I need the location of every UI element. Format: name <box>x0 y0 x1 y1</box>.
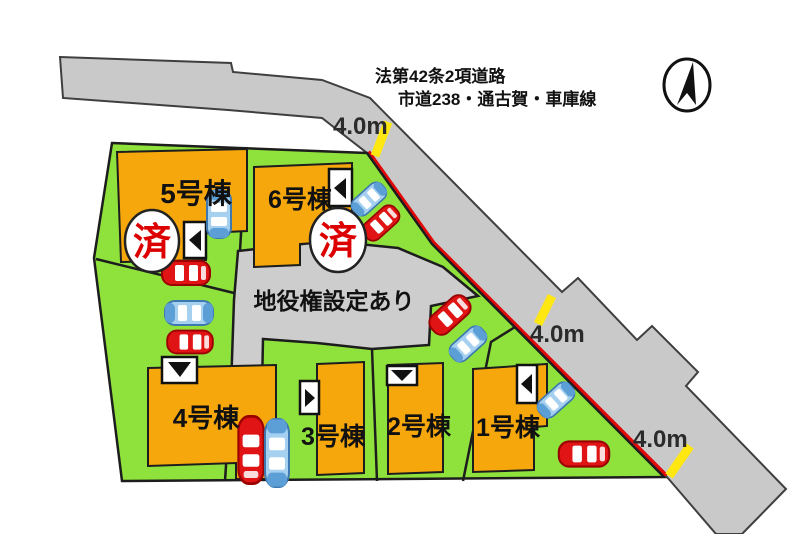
easement-label: 地役権設定あり <box>254 288 415 314</box>
site-plan-canvas: 地役権設定あり <box>0 0 801 534</box>
site-plan-drawing: 地役権設定あり <box>0 0 801 534</box>
sold-badge-lot6-text: 済 <box>319 221 358 263</box>
sold-badge-lot5-text: 済 <box>133 222 172 264</box>
sold-badge-lot6: 済 <box>310 208 366 272</box>
blue-car-icon <box>265 419 289 486</box>
entrance-marker-right-icon <box>300 381 319 414</box>
lot-2-label: 2号棟 <box>387 413 452 441</box>
red-car-icon <box>238 416 263 483</box>
entrance-marker-left-icon <box>329 169 352 206</box>
road-designation-line1: 法第42条2項道路 <box>375 66 506 86</box>
lot-5-label: 5号棟 <box>160 178 233 209</box>
sold-badge-lot5: 済 <box>125 210 179 272</box>
road-width-label-3: 4.0m <box>633 426 688 453</box>
north-compass-icon <box>664 59 710 111</box>
road-width-label-2: 4.0m <box>530 321 585 348</box>
entrance-marker-left-icon <box>184 222 206 258</box>
building-3 <box>317 362 364 475</box>
lot-4-label: 4号棟 <box>173 403 240 433</box>
entrance-marker-left-icon <box>517 365 537 403</box>
lot-3-label: 3号棟 <box>301 423 366 451</box>
lot-6-label: 6号棟 <box>268 186 333 214</box>
road-width-label-1: 4.0m <box>333 113 388 140</box>
blue-car-icon <box>165 301 213 325</box>
road-designation-line2: 市道238・通古賀・車庫線 <box>398 89 596 109</box>
red-car-icon <box>167 331 213 354</box>
entrance-marker-down-icon <box>387 366 417 385</box>
entrance-marker-down-icon <box>162 357 197 383</box>
red-car-icon <box>559 441 609 466</box>
lot-1-label: 1号棟 <box>476 414 541 442</box>
